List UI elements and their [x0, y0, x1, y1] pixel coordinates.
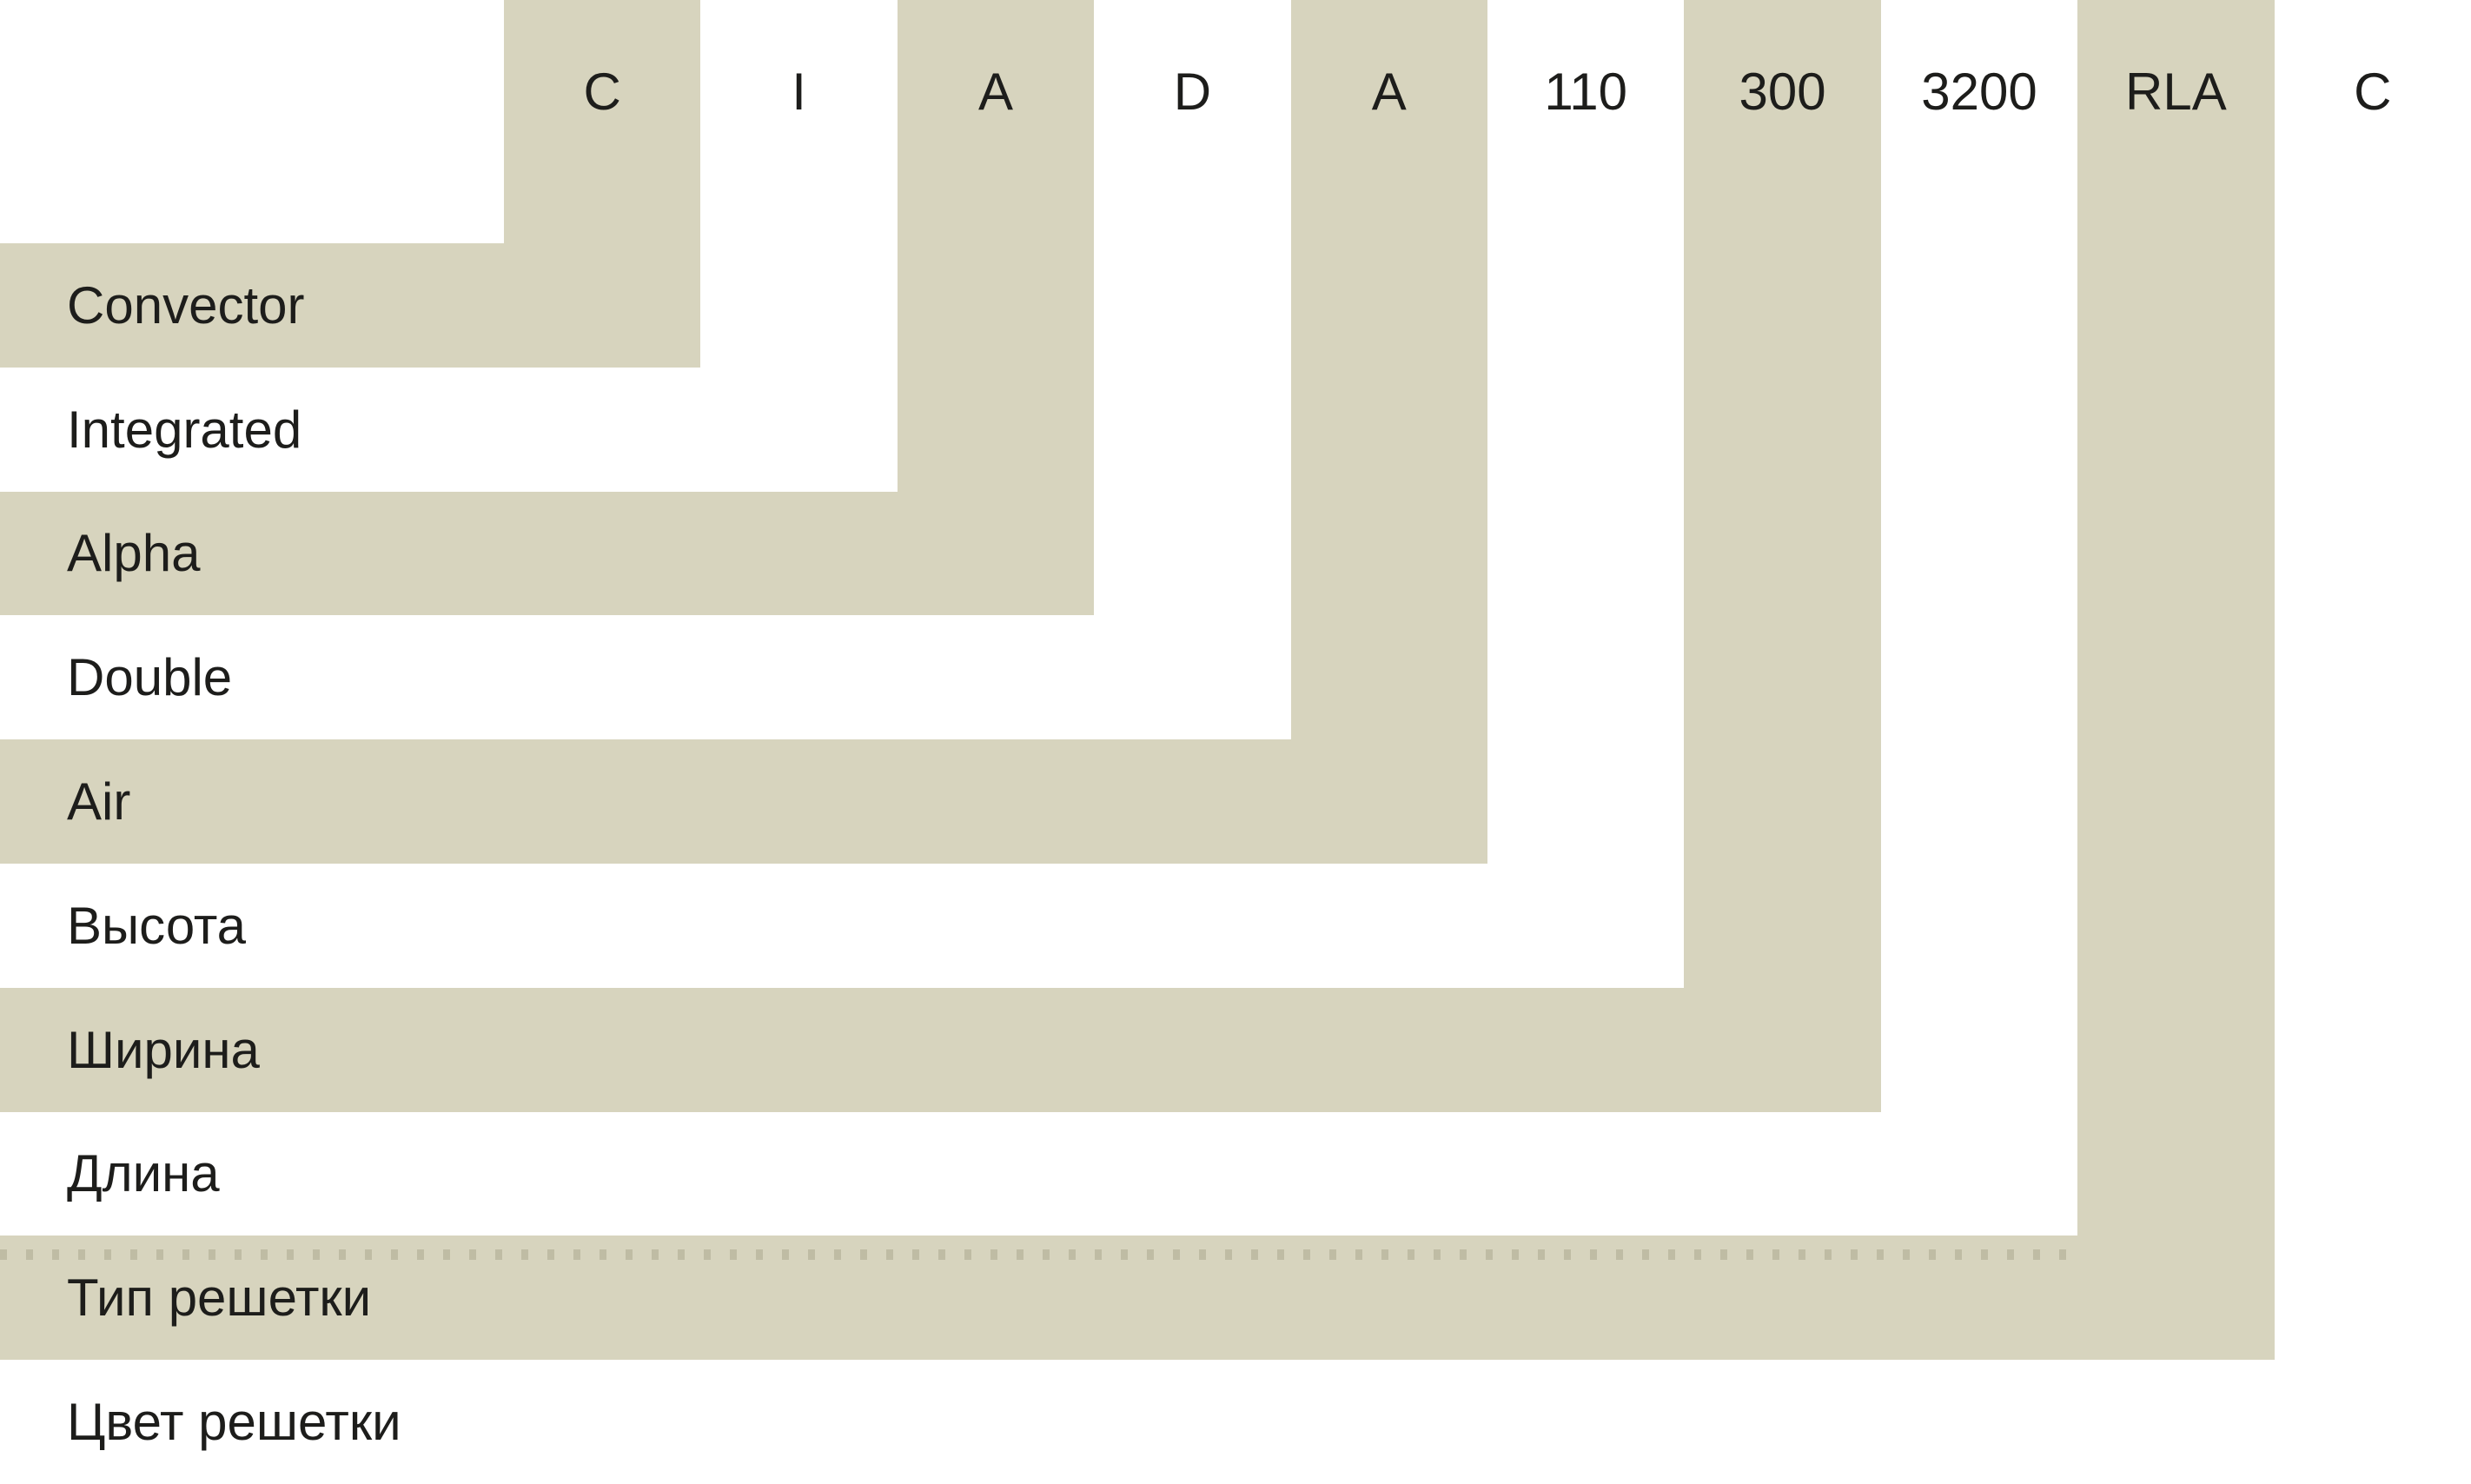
segment-label: Alpha — [0, 492, 1094, 616]
code-segment: A — [1291, 0, 1487, 182]
segment-label: Integrated — [0, 368, 898, 492]
code-segment: 300 — [1684, 0, 1880, 182]
segment-label: Double — [0, 615, 1291, 739]
segment-label: Высота — [0, 864, 1684, 988]
segment-label: Цвет решетки — [0, 1360, 2471, 1484]
code-column-band — [2275, 0, 2471, 1484]
code-segment: I — [700, 0, 897, 182]
code-column-band — [1881, 0, 2077, 1236]
segment-label: Длина — [0, 1112, 2077, 1236]
code-column-band — [2077, 0, 2274, 1360]
code-segment: C — [504, 0, 700, 182]
segment-label: Convector — [0, 243, 700, 368]
code-segment: 3200 — [1881, 0, 2077, 182]
segment-label: Ширина — [0, 988, 1881, 1112]
code-segment: C — [2275, 0, 2471, 182]
segment-label: Air — [0, 739, 1487, 864]
code-segment: A — [898, 0, 1094, 182]
nomenclature-diagram: CConvectorIIntegratedAAlphaDDoubleAAir11… — [0, 0, 2471, 1484]
code-segment: D — [1094, 0, 1290, 182]
segment-label: Тип решетки — [0, 1236, 2275, 1360]
code-segment: RLA — [2077, 0, 2274, 182]
code-segment: 110 — [1487, 0, 1684, 182]
